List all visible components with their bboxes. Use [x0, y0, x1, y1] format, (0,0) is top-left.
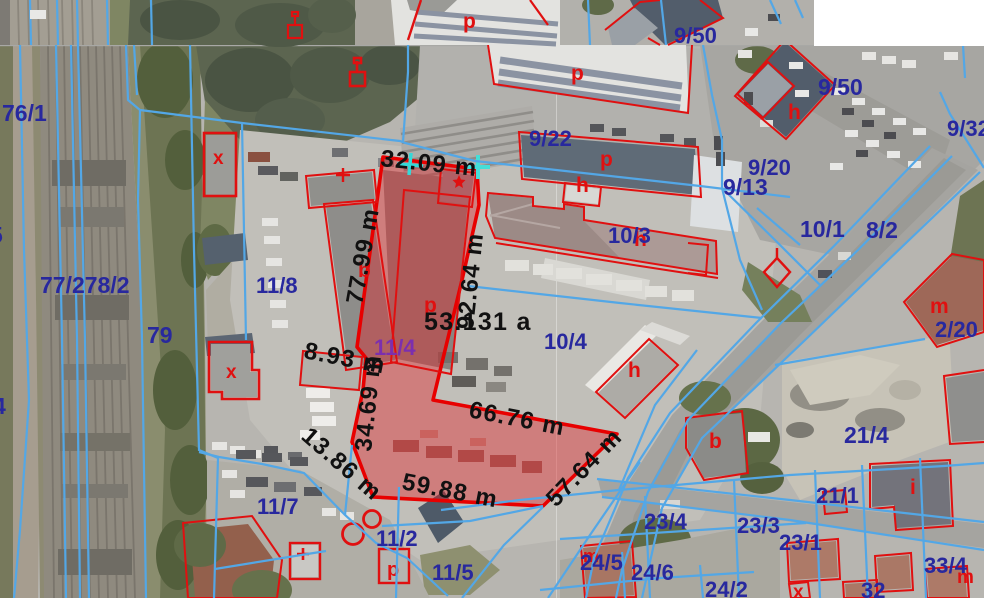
svg-text:9/22: 9/22: [529, 126, 572, 151]
svg-text:24/2: 24/2: [705, 577, 748, 598]
svg-text:9/50: 9/50: [674, 23, 717, 48]
svg-text:23/1: 23/1: [779, 530, 822, 555]
svg-text:b: b: [709, 430, 722, 453]
svg-text:4: 4: [0, 393, 6, 419]
svg-text:p: p: [571, 62, 584, 85]
svg-text:9/20: 9/20: [748, 155, 791, 180]
svg-text:10/3: 10/3: [608, 223, 651, 248]
svg-text:x: x: [793, 582, 804, 598]
svg-text:5: 5: [0, 222, 3, 248]
svg-text:9/50: 9/50: [818, 74, 863, 100]
svg-text:2/20: 2/20: [935, 317, 978, 342]
svg-text:x: x: [226, 362, 237, 383]
svg-text:11/7: 11/7: [257, 494, 299, 519]
svg-text:h: h: [576, 174, 589, 197]
svg-text:23/3: 23/3: [737, 513, 780, 538]
svg-text:h: h: [628, 359, 641, 382]
svg-text:i: i: [910, 476, 916, 499]
svg-text:11/5: 11/5: [432, 560, 474, 585]
svg-text:11/2: 11/2: [376, 526, 418, 551]
svg-text:p: p: [600, 148, 613, 171]
svg-text:24/5: 24/5: [580, 550, 623, 575]
svg-text:11/8: 11/8: [256, 273, 298, 298]
svg-text:23/4: 23/4: [644, 509, 688, 534]
svg-text:p: p: [463, 10, 476, 33]
svg-text:10/4: 10/4: [544, 329, 588, 354]
svg-text:24/6: 24/6: [631, 560, 674, 585]
svg-text:79: 79: [147, 322, 173, 348]
svg-text:10/1: 10/1: [800, 216, 845, 242]
svg-text:76/1: 76/1: [2, 100, 47, 126]
svg-text:21/4: 21/4: [844, 422, 889, 448]
svg-text:77/278/2: 77/278/2: [40, 272, 130, 298]
svg-text:33/4: 33/4: [924, 553, 968, 578]
svg-text:32: 32: [861, 578, 885, 598]
svg-text:m: m: [930, 295, 949, 318]
svg-text:21/1: 21/1: [816, 483, 859, 508]
svg-text:8/2: 8/2: [866, 217, 898, 243]
svg-text:53.131 a: 53.131 a: [424, 308, 532, 336]
svg-text:h: h: [788, 101, 801, 124]
svg-text:9/32: 9/32: [947, 116, 984, 141]
svg-text:x: x: [213, 148, 224, 169]
